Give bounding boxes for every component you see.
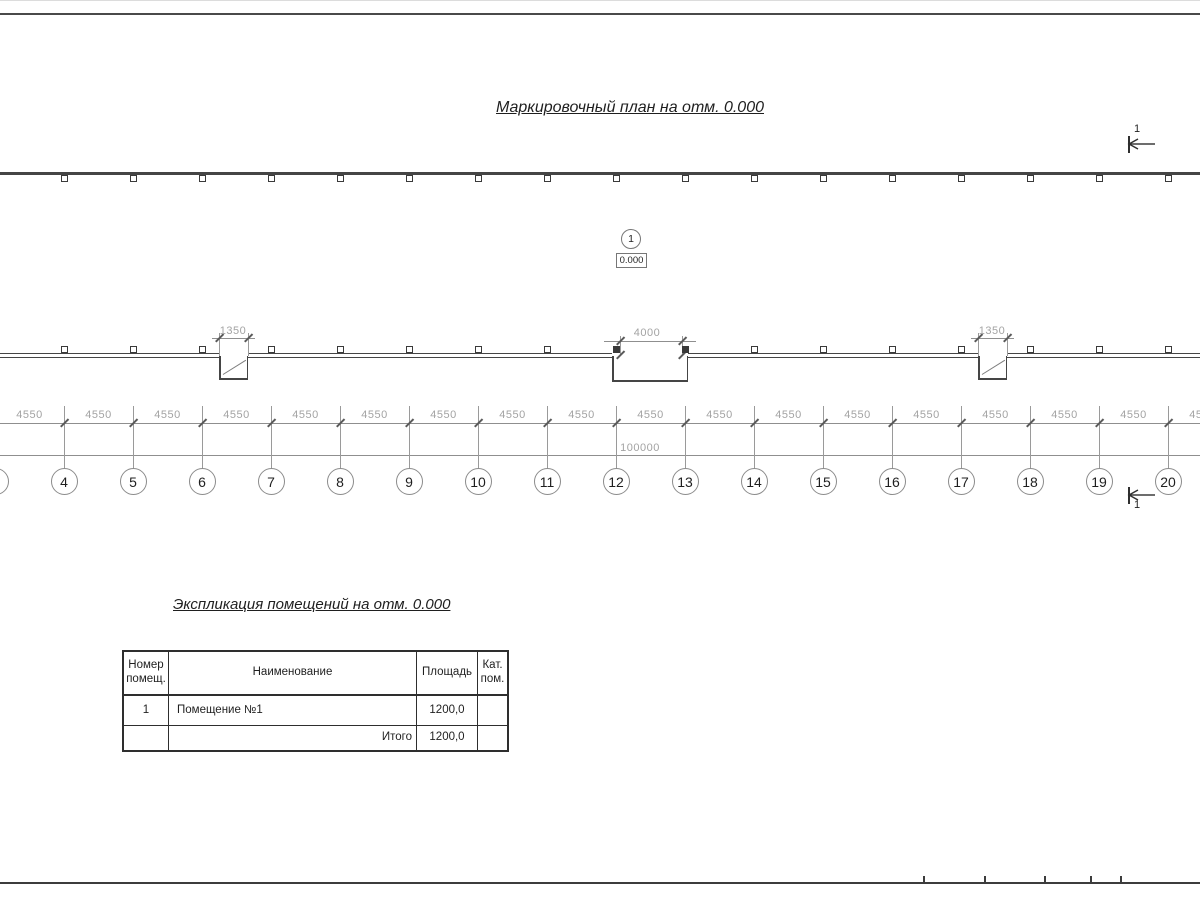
door-leaf-line	[982, 360, 1005, 375]
grid-axis-bubble-partial	[0, 468, 9, 495]
column-marker	[544, 346, 551, 353]
opening-width-label: 4000	[614, 327, 680, 339]
section-mark-top-icon	[1124, 135, 1158, 155]
grid-axis-line	[616, 406, 617, 470]
room-tag-number: 1	[628, 233, 634, 245]
header-category: Кат. пом.	[478, 652, 507, 696]
column-marker	[199, 346, 206, 353]
column-marker	[1027, 175, 1034, 182]
titleblock-tick	[984, 876, 986, 883]
row-room-number: 1	[124, 696, 169, 726]
grid-axis-bubble: 11	[534, 468, 561, 495]
bay-dimension-label: 4550	[1035, 409, 1095, 421]
door-jamb	[1006, 356, 1008, 379]
room-tag-circle: 1	[621, 229, 641, 249]
bay-dimension-label: 4550	[759, 409, 819, 421]
door-jamb	[219, 356, 221, 379]
bay-dimension-label: 4550	[414, 409, 474, 421]
column-marker	[1027, 346, 1034, 353]
bay-dimension-label: 4550	[138, 409, 198, 421]
door-leaf-line	[223, 360, 246, 375]
bay-dimension-label: 4550	[276, 409, 336, 421]
overall-dimension-label: 100000	[580, 442, 700, 454]
grid-axis-line	[823, 406, 824, 470]
bay-dimension-label: 4550	[552, 409, 612, 421]
column-marker	[613, 175, 620, 182]
column-marker	[61, 346, 68, 353]
bay-dimension-label: 4550	[0, 409, 60, 421]
column-marker	[682, 346, 689, 353]
column-marker	[406, 175, 413, 182]
grid-axis-bubble: 17	[948, 468, 975, 495]
column-marker	[268, 175, 275, 182]
dimension-line-bays	[0, 423, 1200, 424]
column-marker	[820, 346, 827, 353]
grid-axis-line	[271, 406, 272, 470]
wall-lower-seg	[248, 353, 612, 358]
total-label: Итого	[169, 726, 417, 750]
column-marker	[475, 175, 482, 182]
grid-axis-line	[1030, 406, 1031, 470]
drawing-sheet: Маркировочный план на отм. 0.000 1 0.000…	[0, 0, 1200, 900]
grid-axis-bubble: 13	[672, 468, 699, 495]
column-marker	[1165, 175, 1172, 182]
elevation-box: 0.000	[616, 253, 647, 268]
column-marker	[613, 346, 620, 353]
bay-dimension-label: 4550	[621, 409, 681, 421]
section-mark-bottom-label: 1	[1131, 499, 1143, 511]
header-area: Площадь	[417, 652, 478, 696]
dimension-line-overall	[0, 455, 1200, 456]
column-marker	[475, 346, 482, 353]
bay-dimension-label: 4550	[828, 409, 888, 421]
titleblock-tick	[923, 876, 925, 883]
bay-dimension-label: 4550	[1104, 409, 1164, 421]
column-marker	[682, 175, 689, 182]
column-marker	[337, 175, 344, 182]
column-marker	[544, 175, 551, 182]
column-marker	[61, 175, 68, 182]
titleblock-tick	[1044, 876, 1046, 883]
total-category	[478, 726, 507, 750]
grid-axis-line	[202, 406, 203, 470]
column-marker	[751, 175, 758, 182]
grid-axis-line	[754, 406, 755, 470]
grid-axis-bubble: 9	[396, 468, 423, 495]
sheet-edge-line	[0, 0, 1200, 1]
bay-dimension-label: 4550	[483, 409, 543, 421]
wall-lower-seg	[688, 353, 978, 358]
row-room-category	[478, 696, 507, 726]
total-row-empty	[124, 726, 169, 750]
bay-dimension-label: 4550	[1173, 409, 1200, 421]
section-mark-top-label: 1	[1131, 123, 1143, 135]
wall-top	[0, 172, 1200, 175]
door-jamb	[687, 356, 689, 381]
bay-dimension-label: 4550	[966, 409, 1026, 421]
grid-axis-line	[685, 406, 686, 470]
door-recess-bottom	[612, 380, 688, 382]
grid-axis-line	[961, 406, 962, 470]
titleblock-tick	[1090, 876, 1092, 883]
column-marker	[130, 346, 137, 353]
column-marker	[1096, 346, 1103, 353]
grid-axis-bubble: 16	[879, 468, 906, 495]
grid-axis-line	[340, 406, 341, 470]
grid-axis-bubble: 7	[258, 468, 285, 495]
column-marker	[958, 346, 965, 353]
door-jamb	[247, 356, 249, 379]
grid-axis-bubble: 10	[465, 468, 492, 495]
row-room-area: 1200,0	[417, 696, 478, 726]
door-jamb	[612, 356, 614, 381]
elevation-value: 0.000	[620, 255, 644, 266]
column-marker	[1165, 346, 1172, 353]
titleblock-tick	[1120, 876, 1122, 883]
schedule-title: Экспликация помещений на отм. 0.000	[173, 596, 450, 613]
grid-axis-bubble: 18	[1017, 468, 1044, 495]
door-recess-bottom	[978, 378, 1007, 380]
grid-axis-line	[133, 406, 134, 470]
grid-axis-bubble: 14	[741, 468, 768, 495]
opening-width-label: 1350	[213, 325, 253, 337]
row-room-name: Помещение №1	[169, 696, 417, 726]
grid-axis-bubble: 4	[51, 468, 78, 495]
column-marker	[199, 175, 206, 182]
grid-axis-line	[478, 406, 479, 470]
bay-dimension-label: 4550	[345, 409, 405, 421]
grid-axis-line	[409, 406, 410, 470]
opening-width-label: 1350	[972, 325, 1012, 337]
grid-axis-bubble: 12	[603, 468, 630, 495]
wall-lower-seg	[1007, 353, 1200, 358]
bay-dimension-label: 4550	[69, 409, 129, 421]
header-name: Наименование	[169, 652, 417, 696]
grid-axis-bubble: 8	[327, 468, 354, 495]
column-marker	[889, 175, 896, 182]
room-schedule-table: Номер помещ. Наименование Площадь Кат. п…	[122, 650, 509, 752]
column-marker	[1096, 175, 1103, 182]
bay-dimension-label: 4550	[690, 409, 750, 421]
header-room-number: Номер помещ.	[124, 652, 169, 696]
column-marker	[751, 346, 758, 353]
bay-dimension-label: 4550	[207, 409, 267, 421]
grid-axis-bubble: 5	[120, 468, 147, 495]
column-marker	[130, 175, 137, 182]
grid-axis-line	[892, 406, 893, 470]
plan-title: Маркировочный план на отм. 0.000	[350, 99, 910, 117]
door-jamb	[978, 356, 980, 379]
grid-axis-line	[547, 406, 548, 470]
door-recess-bottom	[219, 378, 248, 380]
column-marker	[820, 175, 827, 182]
grid-axis-line	[1168, 406, 1169, 470]
grid-axis-bubble: 19	[1086, 468, 1113, 495]
titleblock-top-line	[0, 882, 1200, 884]
column-marker	[889, 346, 896, 353]
column-marker	[268, 346, 275, 353]
grid-axis-line	[64, 406, 65, 470]
wall-lower-seg	[0, 353, 219, 358]
grid-axis-bubble: 15	[810, 468, 837, 495]
grid-axis-bubble: 6	[189, 468, 216, 495]
column-marker	[958, 175, 965, 182]
column-marker	[337, 346, 344, 353]
column-marker	[406, 346, 413, 353]
grid-axis-bubble: 20	[1155, 468, 1182, 495]
total-area: 1200,0	[417, 726, 478, 750]
grid-axis-line	[1099, 406, 1100, 470]
sheet-frame-top	[0, 13, 1200, 15]
bay-dimension-label: 4550	[897, 409, 957, 421]
